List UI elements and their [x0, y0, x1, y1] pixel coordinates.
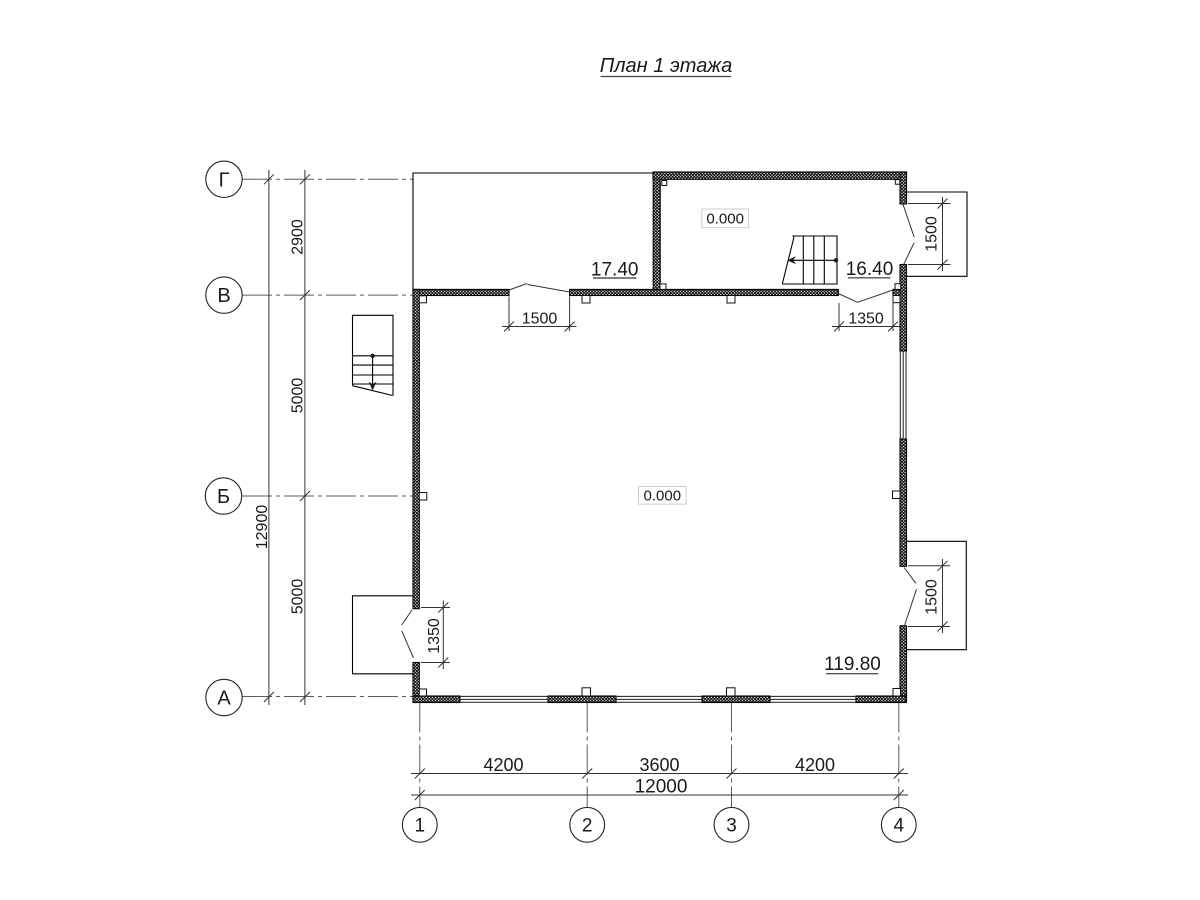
svg-text:4200: 4200 — [483, 755, 523, 775]
svg-text:План 1 этажа: План 1 этажа — [600, 55, 732, 77]
svg-text:2: 2 — [582, 816, 593, 837]
svg-text:В: В — [217, 285, 230, 307]
svg-text:5000: 5000 — [290, 378, 307, 414]
svg-text:1: 1 — [415, 816, 426, 837]
svg-text:1500: 1500 — [924, 216, 941, 252]
svg-text:0.000: 0.000 — [644, 488, 682, 505]
svg-text:3600: 3600 — [639, 755, 679, 775]
svg-text:Б: Б — [217, 486, 230, 508]
svg-text:12000: 12000 — [635, 777, 688, 798]
svg-text:А: А — [217, 688, 231, 710]
svg-text:0.000: 0.000 — [706, 211, 744, 228]
svg-text:1500: 1500 — [522, 311, 558, 328]
svg-text:12900: 12900 — [254, 505, 271, 550]
svg-text:Г: Г — [219, 169, 230, 191]
svg-text:1500: 1500 — [924, 579, 941, 615]
svg-text:4: 4 — [894, 816, 905, 837]
svg-text:3: 3 — [726, 816, 737, 837]
svg-text:1350: 1350 — [426, 618, 443, 654]
svg-text:119.80: 119.80 — [824, 654, 881, 675]
svg-text:16.40: 16.40 — [846, 259, 894, 280]
svg-text:2900: 2900 — [290, 219, 307, 255]
svg-text:4200: 4200 — [795, 755, 835, 775]
svg-text:1350: 1350 — [848, 311, 884, 328]
svg-text:5000: 5000 — [290, 579, 307, 615]
